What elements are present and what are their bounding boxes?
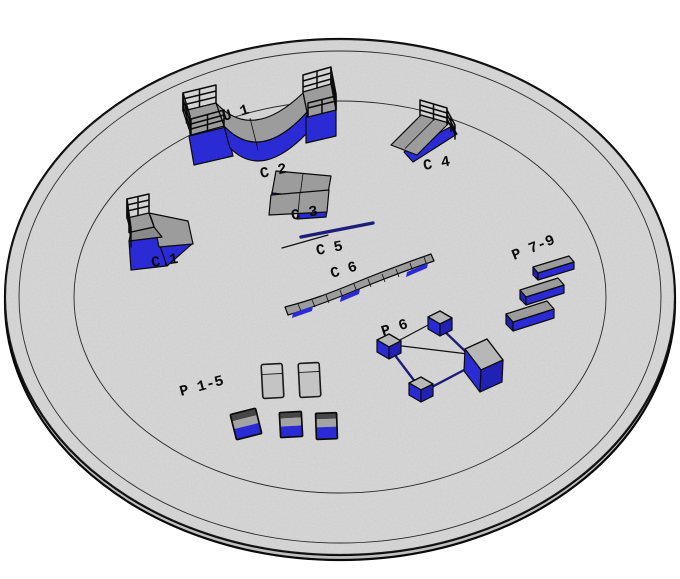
box-3-mid-face	[316, 419, 337, 428]
box-3-blue-face	[316, 427, 337, 440]
pad-2-top-band	[299, 363, 318, 372]
box-1	[230, 408, 262, 440]
circular-platform	[5, 39, 675, 560]
box-2-mid-face	[280, 417, 302, 426]
box-3	[316, 413, 338, 440]
skatepark-3d-scene: U 1 C 1 C 2 C 3 C 4 C 5	[0, 0, 680, 579]
pad-2	[298, 362, 321, 397]
pad-1	[261, 363, 284, 398]
box-2	[279, 411, 302, 437]
pad-1-top-band	[262, 364, 281, 374]
skatepark-3d-view: U 1 C 1 C 2 C 3 C 4 C 5	[0, 0, 680, 579]
